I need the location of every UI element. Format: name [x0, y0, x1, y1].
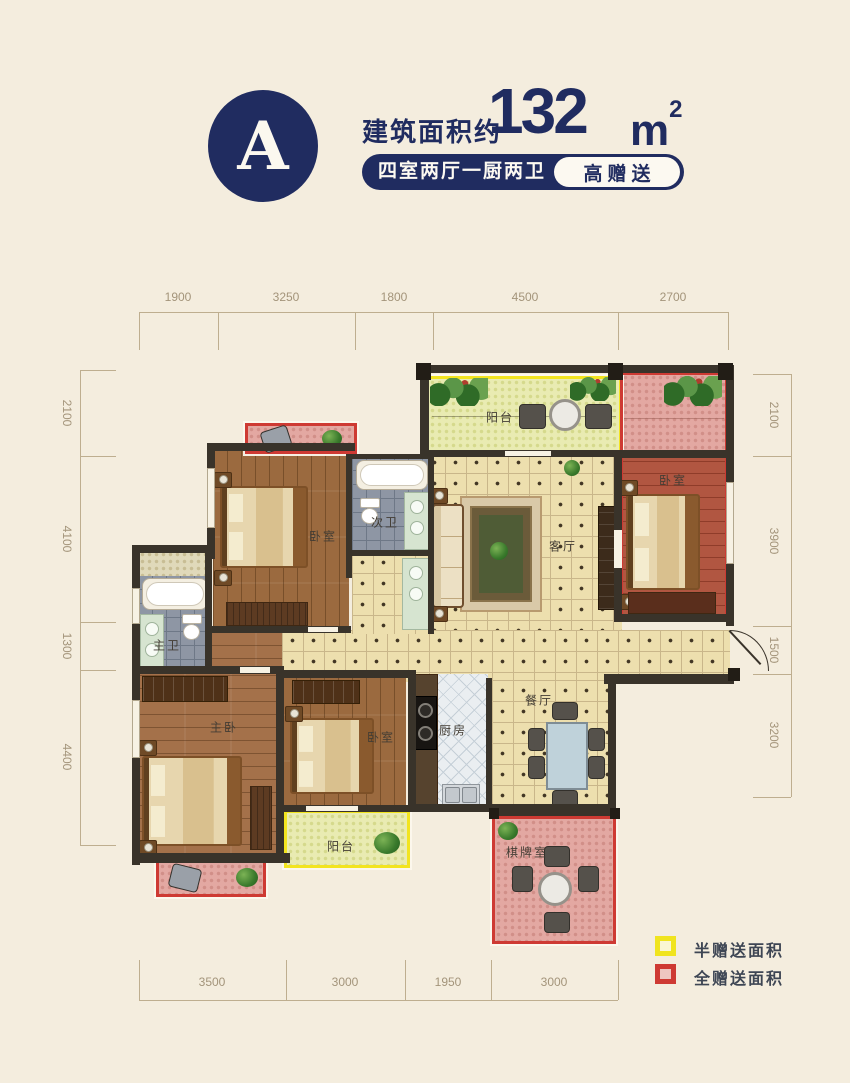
nightstand	[214, 472, 232, 488]
game-chair	[512, 866, 533, 892]
wall	[486, 678, 492, 812]
legend-half-gift-label: 半赠送面积	[694, 937, 784, 961]
balcony-table	[549, 399, 581, 431]
dim-label: 1800	[381, 290, 408, 304]
nightstand	[620, 480, 638, 496]
dim-label: 1900	[165, 290, 192, 304]
dim-tick	[80, 456, 116, 457]
burner-icon	[418, 726, 433, 741]
plant-icon	[490, 542, 508, 560]
door-gap	[240, 667, 270, 673]
plant-icon	[374, 832, 400, 854]
dim-label: 3000	[332, 975, 359, 989]
dresser	[250, 786, 272, 850]
master-bath-ledge	[139, 551, 208, 576]
dim-tick	[491, 960, 492, 1000]
dim-label: 3000	[541, 975, 568, 989]
legend-full-gift-label: 全赠送面积	[694, 965, 784, 989]
wall-column	[718, 363, 733, 380]
dim-tick	[80, 845, 116, 846]
wall	[604, 674, 734, 684]
layout-tag-pill: 四室两厅一厨两卫 高赠送	[362, 154, 684, 190]
legend-full-gift-swatch	[655, 964, 676, 984]
wall	[408, 670, 416, 812]
wall-column	[489, 808, 499, 819]
room-label-game-room: 棋牌室	[506, 844, 548, 861]
room-label-balcony-top: 阳台	[486, 409, 514, 426]
room-label-bedroom-bottom: 卧室	[367, 729, 395, 746]
dim-label: 2100	[767, 402, 781, 429]
dim-tick	[139, 312, 140, 350]
bed	[290, 718, 374, 794]
wall	[492, 810, 616, 816]
dresser	[628, 592, 716, 614]
dim-tick	[618, 960, 619, 1000]
dim-tick	[218, 312, 219, 350]
dim-tick	[753, 374, 791, 375]
area-unit-exponent: 2	[669, 96, 682, 123]
dim-tick	[139, 960, 140, 1000]
plant-icon	[564, 460, 580, 476]
plant-icon	[498, 822, 518, 840]
area-prefix: 建筑面积约	[362, 112, 502, 149]
bonus-tag-capsule: 高赠送	[554, 157, 680, 187]
wall	[620, 450, 730, 458]
dim-tick	[80, 670, 116, 671]
wall	[608, 678, 616, 812]
dim-label: 1300	[60, 633, 74, 660]
bathtub	[356, 460, 428, 490]
wall	[350, 454, 434, 459]
wall	[350, 550, 432, 556]
dim-label: 3250	[273, 290, 300, 304]
legend-half-gift-swatch	[655, 936, 676, 956]
dim-tick	[753, 797, 791, 798]
room-label-balcony-bottom: 阳台	[327, 838, 355, 855]
dim-label: 1500	[767, 637, 781, 664]
balcony-door-gap	[306, 806, 358, 811]
dining-chair	[552, 702, 578, 720]
wall	[276, 670, 412, 678]
room-label-master-bedroom: 主卧	[210, 719, 238, 736]
bed	[626, 494, 700, 590]
room-label-kitchen: 厨房	[439, 722, 467, 739]
wardrobe	[142, 676, 228, 702]
dim-line-right	[791, 374, 792, 797]
wall	[207, 443, 355, 451]
room-label-living: 客厅	[549, 538, 577, 555]
nightstand	[214, 570, 232, 586]
nightstand	[285, 706, 303, 722]
room-label-master-bath: 主卫	[153, 637, 181, 654]
door-gap	[308, 627, 338, 632]
game-table	[538, 872, 572, 906]
window	[207, 468, 215, 528]
layout-tag: 四室两厅一厨两卫	[378, 154, 546, 190]
wall	[420, 365, 734, 373]
dim-tick	[618, 312, 619, 350]
wall	[346, 454, 352, 578]
unit-badge: A	[208, 90, 318, 202]
bathtub	[142, 578, 208, 610]
dim-tick	[753, 626, 791, 627]
dim-tick	[753, 674, 791, 675]
dim-tick	[753, 456, 791, 457]
dim-tick	[433, 312, 434, 350]
dining-chair	[528, 728, 545, 751]
wall-column	[416, 363, 431, 380]
plant-icon	[236, 868, 258, 887]
door-gap	[614, 530, 622, 568]
room-label-dining: 餐厅	[525, 692, 553, 709]
window	[132, 700, 140, 758]
dim-line-bottom	[139, 1000, 618, 1001]
balcony-chair	[585, 404, 612, 429]
room-label-second-bath: 次卫	[371, 514, 399, 531]
sliding-door-gap	[505, 451, 551, 456]
dim-label: 4100	[60, 526, 74, 553]
dim-label: 4400	[60, 744, 74, 771]
sofa	[432, 504, 464, 608]
dim-label: 2100	[60, 400, 74, 427]
wall	[132, 545, 212, 553]
dim-tick	[80, 622, 116, 623]
plant-cluster-icon	[430, 378, 488, 406]
plant-cluster-icon	[664, 376, 722, 406]
bed	[220, 486, 308, 568]
window	[132, 588, 140, 624]
dining-chair	[588, 728, 605, 751]
sink-vanity	[404, 492, 430, 550]
dining-table	[546, 722, 588, 790]
wall	[276, 670, 284, 860]
dim-label: 3500	[199, 975, 226, 989]
area-unit: m2	[630, 96, 682, 156]
area-value: 132	[488, 74, 586, 148]
wall	[132, 853, 290, 863]
burner-icon	[418, 703, 433, 718]
bonus-tag: 高赠送	[578, 159, 655, 186]
dim-tick	[80, 370, 116, 371]
dim-tick	[728, 312, 729, 350]
window	[726, 482, 734, 564]
kitchen-sink	[442, 784, 480, 806]
dining-chair	[528, 756, 545, 779]
plant-cluster-icon	[570, 377, 616, 401]
game-chair	[578, 866, 599, 892]
wall-column	[608, 363, 623, 380]
dim-label: 3900	[767, 528, 781, 555]
balcony-chair	[519, 404, 546, 429]
room-label-bedroom-right: 卧室	[659, 472, 687, 489]
area-unit-base: m	[630, 106, 669, 155]
dim-line-left	[80, 370, 81, 845]
wardrobe	[292, 680, 360, 704]
unit-label: A	[237, 113, 288, 179]
wall	[205, 545, 212, 673]
sink-vanity	[402, 558, 430, 630]
dim-label: 3200	[767, 722, 781, 749]
dim-tick	[286, 960, 287, 1000]
wall-column	[610, 808, 620, 819]
dim-label: 2700	[660, 290, 687, 304]
dim-tick	[355, 312, 356, 350]
wall	[428, 454, 434, 634]
room-label-bedroom-top-left: 卧室	[309, 528, 337, 545]
game-chair	[544, 912, 570, 933]
toilet	[180, 614, 204, 641]
floorplan-page: A 建筑面积约 132 m2 四室两厅一厨两卫 高赠送 1900 3250 18…	[0, 0, 850, 1083]
bed	[142, 756, 242, 846]
dresser	[226, 602, 308, 626]
dim-tick	[405, 960, 406, 1000]
dining-chair	[588, 756, 605, 779]
dim-label: 4500	[512, 290, 539, 304]
nightstand	[139, 740, 157, 756]
door-post	[728, 668, 740, 681]
wall	[616, 614, 734, 622]
dim-label: 1950	[435, 975, 462, 989]
